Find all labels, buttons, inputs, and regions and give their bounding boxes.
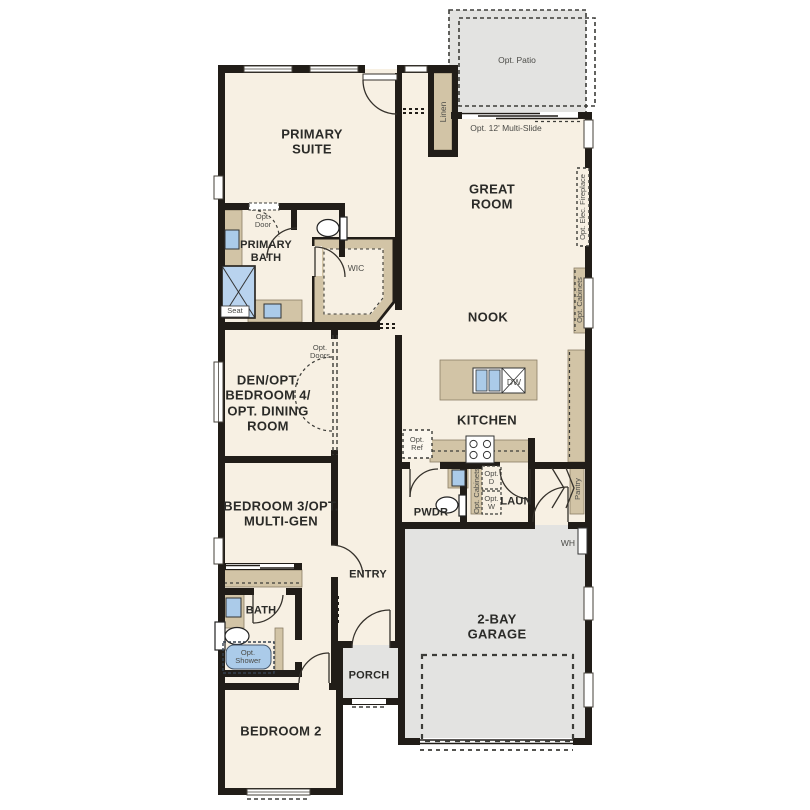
floor-plan-drawing <box>0 0 810 810</box>
opt-shower-label: Opt. Shower <box>235 649 260 666</box>
wic-closet <box>310 240 392 323</box>
primary-sink-1 <box>225 230 239 249</box>
opt-cabinets-laundry-label: Opt. Cabinets <box>473 468 481 514</box>
opt-cabinets-wall-label: Opt. Cabinets <box>576 277 584 323</box>
island-sink <box>473 368 502 393</box>
primary-suite-label: PRIMARY SUITE <box>281 127 343 158</box>
bed3-closet-shelf <box>222 570 302 587</box>
entry-label: ENTRY <box>349 569 387 582</box>
primary-bath-label: PRIMARY BATH <box>240 239 292 265</box>
stove <box>466 436 494 463</box>
opt-dryer-label: Opt. D <box>484 470 498 487</box>
floor-plan: Opt. Patio Linen Opt. 12' Multi-Slide PR… <box>0 0 810 810</box>
opt-patio-label: Opt. Patio <box>498 55 536 65</box>
water-heater-label: WH <box>561 538 575 548</box>
great-room-label: GREAT ROOM <box>469 182 515 213</box>
bath-label: BATH <box>246 605 277 618</box>
opt-door-gap <box>249 203 279 210</box>
kitchen-counter-right <box>568 350 585 462</box>
bedroom2-label: BEDROOM 2 <box>240 723 321 738</box>
dw-label: DW <box>507 377 521 387</box>
powder-sink <box>452 470 465 486</box>
water-heater-box <box>578 528 587 554</box>
opt-washer-label: Opt. W <box>484 495 498 512</box>
wic-label: WIC <box>348 263 365 273</box>
den-label: DEN/OPT. BEDROOM 4/ OPT. DINING ROOM <box>225 372 310 433</box>
opt-ref-label: Opt. Ref <box>410 436 424 453</box>
bedroom3-label: BEDROOM 3/OPT. MULTI-GEN <box>223 499 338 530</box>
opt-doors-label: Opt. Doors <box>310 344 330 361</box>
porch-step <box>352 699 386 707</box>
primary-sink-2 <box>264 304 281 318</box>
multi-slide-label: Opt. 12' Multi-Slide <box>470 123 542 133</box>
seat-label: Seat <box>227 307 242 315</box>
bath-closet-shelf <box>275 628 283 672</box>
garage-door <box>420 738 573 750</box>
nook-label: NOOK <box>468 309 508 324</box>
kitchen-label: KITCHEN <box>457 412 517 427</box>
porch-label: PORCH <box>349 670 390 683</box>
garage-label: 2-BAY GARAGE <box>468 612 527 643</box>
linen-label: Linen <box>438 102 448 123</box>
powder-label: PWDR <box>414 507 448 520</box>
opt-elec-fireplace-label: Opt. Elec. Fireplace <box>579 174 587 240</box>
pantry-label: Pantry <box>574 478 582 500</box>
bath-sink <box>226 598 241 617</box>
opt-door-label: Opt. Door <box>255 213 271 230</box>
bed3-closet-doors <box>226 564 294 569</box>
laundry-label: LAUN <box>500 496 531 509</box>
